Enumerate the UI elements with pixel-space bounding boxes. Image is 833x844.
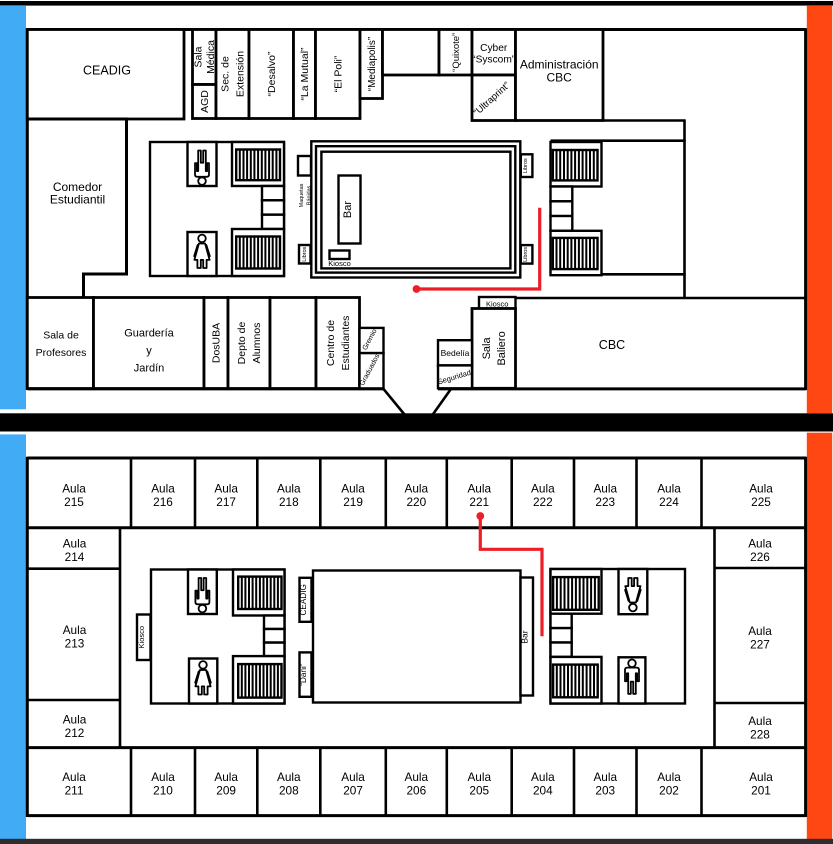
svg-text:y: y [146, 345, 152, 357]
svg-text:“Mediapolis”: “Mediapolis” [367, 37, 378, 91]
svg-text:228: 228 [750, 727, 770, 741]
svg-text:227: 227 [750, 638, 770, 652]
svg-text:Libros: Libros [302, 246, 308, 261]
svg-text:Aula: Aula [748, 536, 772, 550]
svg-text:Baliero: Baliero [496, 331, 508, 365]
svg-text:218: 218 [279, 495, 299, 509]
svg-text:206: 206 [406, 784, 426, 798]
svg-text:Sala: Sala [481, 337, 493, 360]
svg-text:225: 225 [751, 495, 771, 509]
svg-text:Aula: Aula [151, 770, 175, 784]
svg-text:Aula: Aula [214, 770, 238, 784]
svg-text:220: 220 [406, 495, 426, 509]
svg-text:207: 207 [343, 784, 363, 798]
svg-text:217: 217 [216, 495, 236, 509]
svg-text:Aula: Aula [657, 481, 681, 495]
svg-text:Profesores: Profesores [36, 347, 87, 359]
svg-text:Aula: Aula [531, 481, 555, 495]
svg-text:Aula: Aula [593, 481, 617, 495]
svg-text:Bar: Bar [342, 201, 354, 218]
svg-text:205: 205 [469, 784, 489, 798]
svg-text:Aula: Aula [749, 481, 773, 495]
svg-text:Alumnos: Alumnos [251, 323, 263, 364]
svg-text:Aula: Aula [62, 481, 86, 495]
svg-text:Kiosco: Kiosco [328, 259, 351, 268]
svg-text:Aula: Aula [277, 770, 301, 784]
svg-text:210: 210 [153, 784, 173, 798]
svg-text:Aula: Aula [151, 481, 175, 495]
svg-text:202: 202 [659, 784, 679, 798]
svg-text:215: 215 [64, 495, 84, 509]
svg-text:Aula: Aula [341, 481, 365, 495]
svg-text:211: 211 [65, 784, 84, 798]
svg-text:201: 201 [751, 784, 771, 798]
svg-text:223: 223 [595, 495, 615, 509]
svg-text:208: 208 [279, 784, 299, 798]
svg-text:214: 214 [65, 550, 85, 564]
svg-text:Sec. de: Sec. de [220, 56, 232, 92]
svg-text:CEADIG: CEADIG [299, 584, 308, 615]
svg-text:Estudiantes: Estudiantes [340, 316, 352, 371]
svg-text:Libros: Libros [523, 158, 529, 173]
svg-text:Aula: Aula [214, 481, 238, 495]
svg-text:Centro de: Centro de [325, 320, 337, 366]
svg-text:Aula: Aula [404, 481, 428, 495]
svg-text:Kiosco: Kiosco [137, 626, 146, 649]
svg-text:Aula: Aula [657, 770, 681, 784]
svg-text:Kiosco: Kiosco [486, 299, 509, 308]
svg-text:Aula: Aula [277, 481, 301, 495]
svg-text:204: 204 [533, 784, 553, 798]
svg-text:“Desalvo”: “Desalvo” [266, 51, 278, 96]
svg-text:Aula: Aula [467, 770, 491, 784]
svg-text:Sala de: Sala de [43, 330, 79, 342]
svg-text:Jardín: Jardín [134, 363, 165, 375]
svg-text:“El Poli”: “El Poli” [332, 55, 344, 92]
svg-text:“Quixote”: “Quixote” [451, 33, 462, 72]
svg-text:Aula: Aula [593, 770, 617, 784]
svg-text:“Dani”: “Dani” [299, 663, 308, 686]
svg-text:Guardería: Guardería [124, 328, 174, 340]
svg-text:Aula: Aula [748, 714, 772, 728]
svg-text:Aula: Aula [341, 770, 365, 784]
svg-text:203: 203 [595, 784, 615, 798]
svg-text:Maquetas: Maquetas [299, 183, 305, 207]
svg-text:222: 222 [533, 495, 553, 509]
svg-text:Aula: Aula [748, 624, 772, 638]
svg-text:Libros: Libros [523, 247, 529, 262]
svg-text:Extensión: Extensión [235, 51, 247, 97]
svg-text:Estudiantil: Estudiantil [50, 193, 105, 207]
svg-text:Aula: Aula [63, 537, 87, 551]
svg-text:219: 219 [343, 495, 363, 509]
svg-text:224: 224 [659, 495, 679, 509]
svg-text:213: 213 [65, 636, 85, 650]
svg-text:Aula: Aula [531, 770, 555, 784]
svg-text:Aula: Aula [63, 623, 87, 637]
svg-text:Aula: Aula [467, 481, 491, 495]
svg-text:226: 226 [750, 550, 770, 564]
svg-text:Aula: Aula [62, 770, 86, 784]
svg-text:212: 212 [65, 726, 85, 740]
svg-text:CBC: CBC [547, 70, 573, 84]
svg-text:Bedelía: Bedelía [441, 348, 470, 358]
svg-text:Bar: Bar [519, 630, 529, 643]
svg-text:“La Mutual”: “La Mutual” [299, 47, 311, 101]
svg-text:Aula: Aula [749, 770, 773, 784]
svg-text:216: 216 [153, 495, 173, 509]
svg-text:Cyber: Cyber [480, 43, 508, 54]
svg-text:AGD: AGD [199, 90, 211, 113]
svg-text:Depto de: Depto de [236, 322, 248, 365]
svg-text:DosUBA: DosUBA [211, 323, 223, 363]
svg-text:CEADIG: CEADIG [83, 64, 131, 78]
svg-text:221: 221 [469, 495, 489, 509]
svg-text:Aula: Aula [63, 712, 87, 726]
svg-text:“Syscom”: “Syscom” [472, 55, 516, 66]
svg-text:209: 209 [216, 784, 236, 798]
svg-text:Aula: Aula [404, 770, 428, 784]
svg-text:Sala: Sala [193, 46, 205, 67]
svg-text:CBC: CBC [599, 338, 625, 352]
